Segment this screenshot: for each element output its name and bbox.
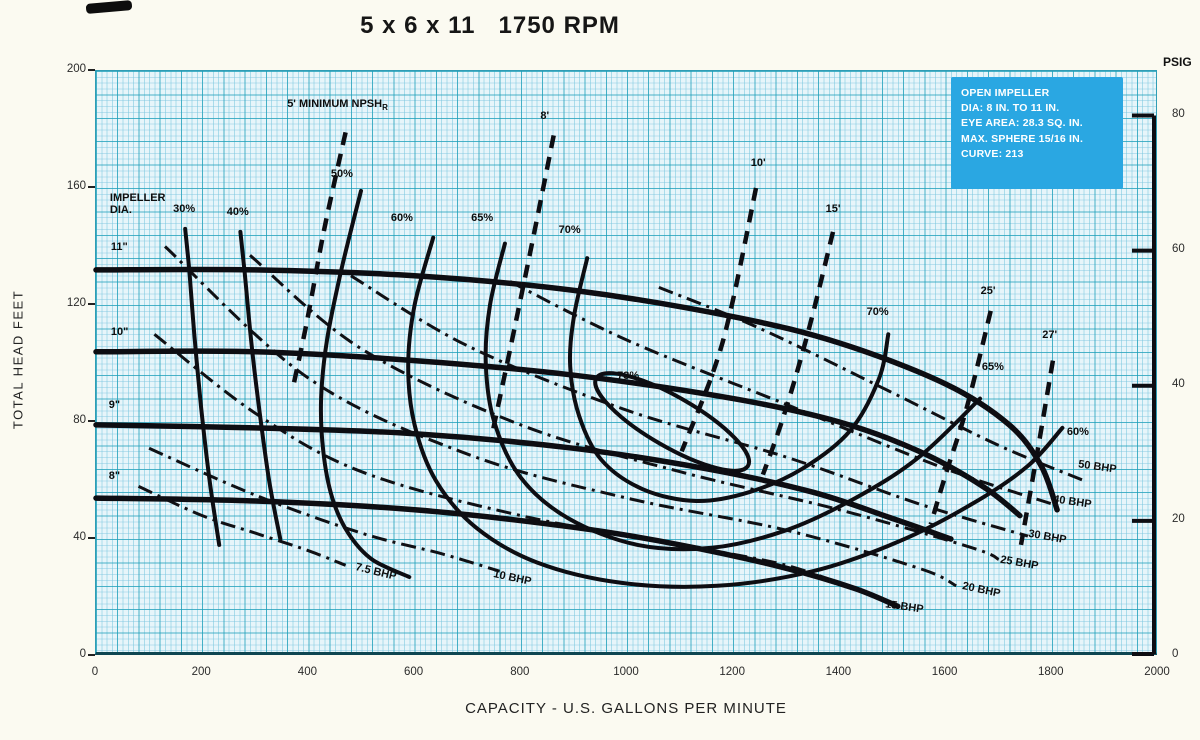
y-tickmark-160 [88, 186, 95, 188]
psig-axis-title: PSIG [1163, 55, 1199, 69]
x-tick-1600: 1600 [923, 666, 967, 678]
psig-tick-20: 20 [1172, 513, 1200, 525]
x-tick-1400: 1400 [816, 666, 860, 678]
y-tick-40: 40 [50, 531, 86, 543]
y-tickmark-40 [88, 537, 95, 539]
x-tick-0: 0 [73, 666, 117, 678]
psig-tick-80: 80 [1172, 108, 1200, 120]
psig-tick-60: 60 [1172, 243, 1200, 255]
x-tick-2000: 2000 [1135, 666, 1179, 678]
psig-tick-0: 0 [1172, 648, 1200, 660]
x-tick-400: 400 [285, 666, 329, 678]
y-tickmark-200 [88, 69, 95, 71]
x-tick-1000: 1000 [604, 666, 648, 678]
y-tickmark-80 [88, 420, 95, 422]
x-tick-1800: 1800 [1029, 666, 1073, 678]
x-tick-1200: 1200 [710, 666, 754, 678]
y-tick-80: 80 [50, 414, 86, 426]
y-tick-200: 200 [50, 63, 86, 75]
x-tick-200: 200 [179, 666, 223, 678]
pump-curve-chart: 5 x 6 x 11 1750 RPM OPEN IMPELLERDIA: 8 … [0, 0, 1200, 740]
y-tick-120: 120 [50, 297, 86, 309]
y-tickmark-0 [88, 654, 95, 656]
info-box-line-0: OPEN IMPELLER [961, 86, 1113, 101]
npsh-line-15 [763, 232, 833, 475]
bhp-line-20 [165, 247, 956, 586]
y-tick-0: 0 [50, 648, 86, 660]
psig-tick-40: 40 [1172, 378, 1200, 390]
psig-scale-bracket [1132, 115, 1154, 654]
x-tick-800: 800 [498, 666, 542, 678]
info-box-line-1: DIA: 8 IN. TO 11 IN. [961, 101, 1113, 116]
efficiency-curve-50 [321, 191, 409, 577]
info-box-line-4: CURVE: 213 [961, 147, 1113, 162]
x-tick-600: 600 [392, 666, 436, 678]
info-box-line-3: MAX. SPHERE 15/16 IN. [961, 132, 1113, 147]
info-box-line-2: EYE AREA: 28.3 SQ. IN. [961, 116, 1113, 131]
bhp-line-15 [154, 334, 860, 591]
y-axis-title: TOTAL HEAD FEET [11, 210, 26, 510]
bhp-line-30 [351, 276, 1028, 536]
bhp-line-40 [510, 282, 1052, 504]
y-tick-160: 160 [50, 180, 86, 192]
chart-title: 5 x 6 x 11 1750 RPM [0, 12, 980, 40]
npsh-line-27 [1021, 361, 1053, 545]
y-tickmark-120 [88, 303, 95, 305]
plot-area: OPEN IMPELLERDIA: 8 IN. TO 11 IN.EYE ARE… [95, 70, 1157, 655]
x-axis-title: CAPACITY - U.S. GALLONS PER MINUTE [95, 700, 1157, 717]
info-box: OPEN IMPELLERDIA: 8 IN. TO 11 IN.EYE ARE… [951, 77, 1123, 189]
